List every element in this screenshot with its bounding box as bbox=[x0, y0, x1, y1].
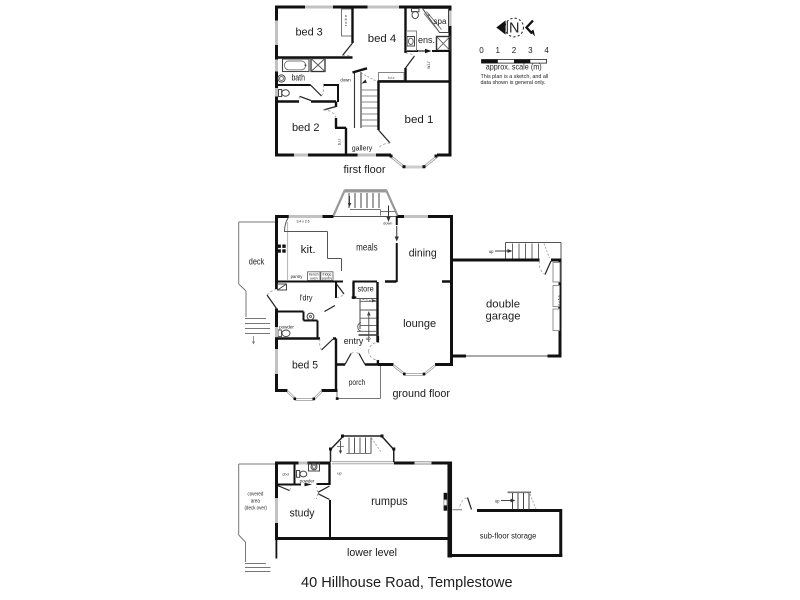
svg-text:dining: dining bbox=[409, 248, 437, 260]
svg-text:l'dry: l'dry bbox=[300, 293, 314, 303]
svg-text:bed 2: bed 2 bbox=[292, 122, 320, 134]
svg-text:gallery: gallery bbox=[352, 146, 373, 153]
svg-text:3.4 x 2.6: 3.4 x 2.6 bbox=[296, 220, 309, 224]
svg-text:data shown is general only.: data shown is general only. bbox=[481, 80, 546, 86]
svg-text:up: up bbox=[337, 472, 341, 476]
svg-text:sub-floor storage: sub-floor storage bbox=[480, 532, 537, 541]
svg-text:pantry: pantry bbox=[322, 277, 332, 281]
svg-text:ens.: ens. bbox=[418, 35, 435, 45]
svg-text:powder: powder bbox=[279, 325, 294, 330]
svg-text:w.i.r: w.i.r bbox=[426, 61, 431, 69]
svg-text:meals: meals bbox=[356, 242, 378, 253]
svg-text:bed 5: bed 5 bbox=[292, 360, 318, 372]
svg-text:double: double bbox=[486, 299, 520, 311]
svg-text:lounge: lounge bbox=[403, 318, 436, 330]
svg-text:area: area bbox=[251, 498, 260, 504]
svg-text:down: down bbox=[340, 78, 351, 83]
svg-text:cbd: cbd bbox=[282, 472, 288, 477]
svg-text:approx. scale (m): approx. scale (m) bbox=[486, 62, 542, 72]
svg-text:porch: porch bbox=[349, 378, 366, 387]
svg-text:b.i.r: b.i.r bbox=[338, 138, 342, 145]
svg-text:first floor: first floor bbox=[344, 164, 386, 176]
svg-text:lower level: lower level bbox=[347, 547, 397, 559]
svg-text:1: 1 bbox=[495, 46, 500, 55]
svg-text:up: up bbox=[366, 336, 371, 341]
svg-text:oven: oven bbox=[310, 277, 318, 281]
svg-text:powder: powder bbox=[300, 479, 315, 484]
svg-text:rumpus: rumpus bbox=[371, 494, 408, 508]
svg-text:garage: garage bbox=[486, 311, 521, 323]
svg-text:bed 4: bed 4 bbox=[368, 33, 397, 45]
svg-text:bed 3: bed 3 bbox=[295, 27, 322, 39]
svg-text:2: 2 bbox=[512, 46, 517, 55]
svg-text:store: store bbox=[358, 283, 374, 293]
svg-text:kit.: kit. bbox=[301, 244, 316, 256]
svg-text:ground floor: ground floor bbox=[392, 388, 450, 400]
svg-text:covered: covered bbox=[248, 492, 264, 498]
svg-text:b.i.r: b.i.r bbox=[388, 76, 395, 80]
svg-text:r o b e: r o b e bbox=[343, 14, 348, 26]
svg-text:40 Hillhouse Road, Templestowe: 40 Hillhouse Road, Templestowe bbox=[301, 574, 513, 591]
svg-text:up: up bbox=[495, 499, 500, 504]
svg-text:deck: deck bbox=[249, 257, 265, 268]
svg-text:up: up bbox=[489, 249, 494, 254]
svg-text:3: 3 bbox=[528, 46, 533, 55]
svg-text:N: N bbox=[509, 21, 519, 37]
svg-text:0: 0 bbox=[479, 46, 484, 55]
svg-text:4: 4 bbox=[544, 46, 549, 55]
svg-text:spa: spa bbox=[434, 17, 447, 26]
svg-text:bath: bath bbox=[291, 72, 305, 82]
svg-text:study: study bbox=[290, 508, 315, 520]
svg-text:pantry: pantry bbox=[291, 274, 304, 279]
svg-text:(deck over): (deck over) bbox=[244, 505, 267, 511]
svg-text:6.0 x 5.9: 6.0 x 5.9 bbox=[558, 295, 562, 308]
svg-text:down: down bbox=[383, 221, 392, 225]
svg-text:entry: entry bbox=[344, 336, 364, 346]
svg-text:bed 1: bed 1 bbox=[405, 114, 434, 126]
